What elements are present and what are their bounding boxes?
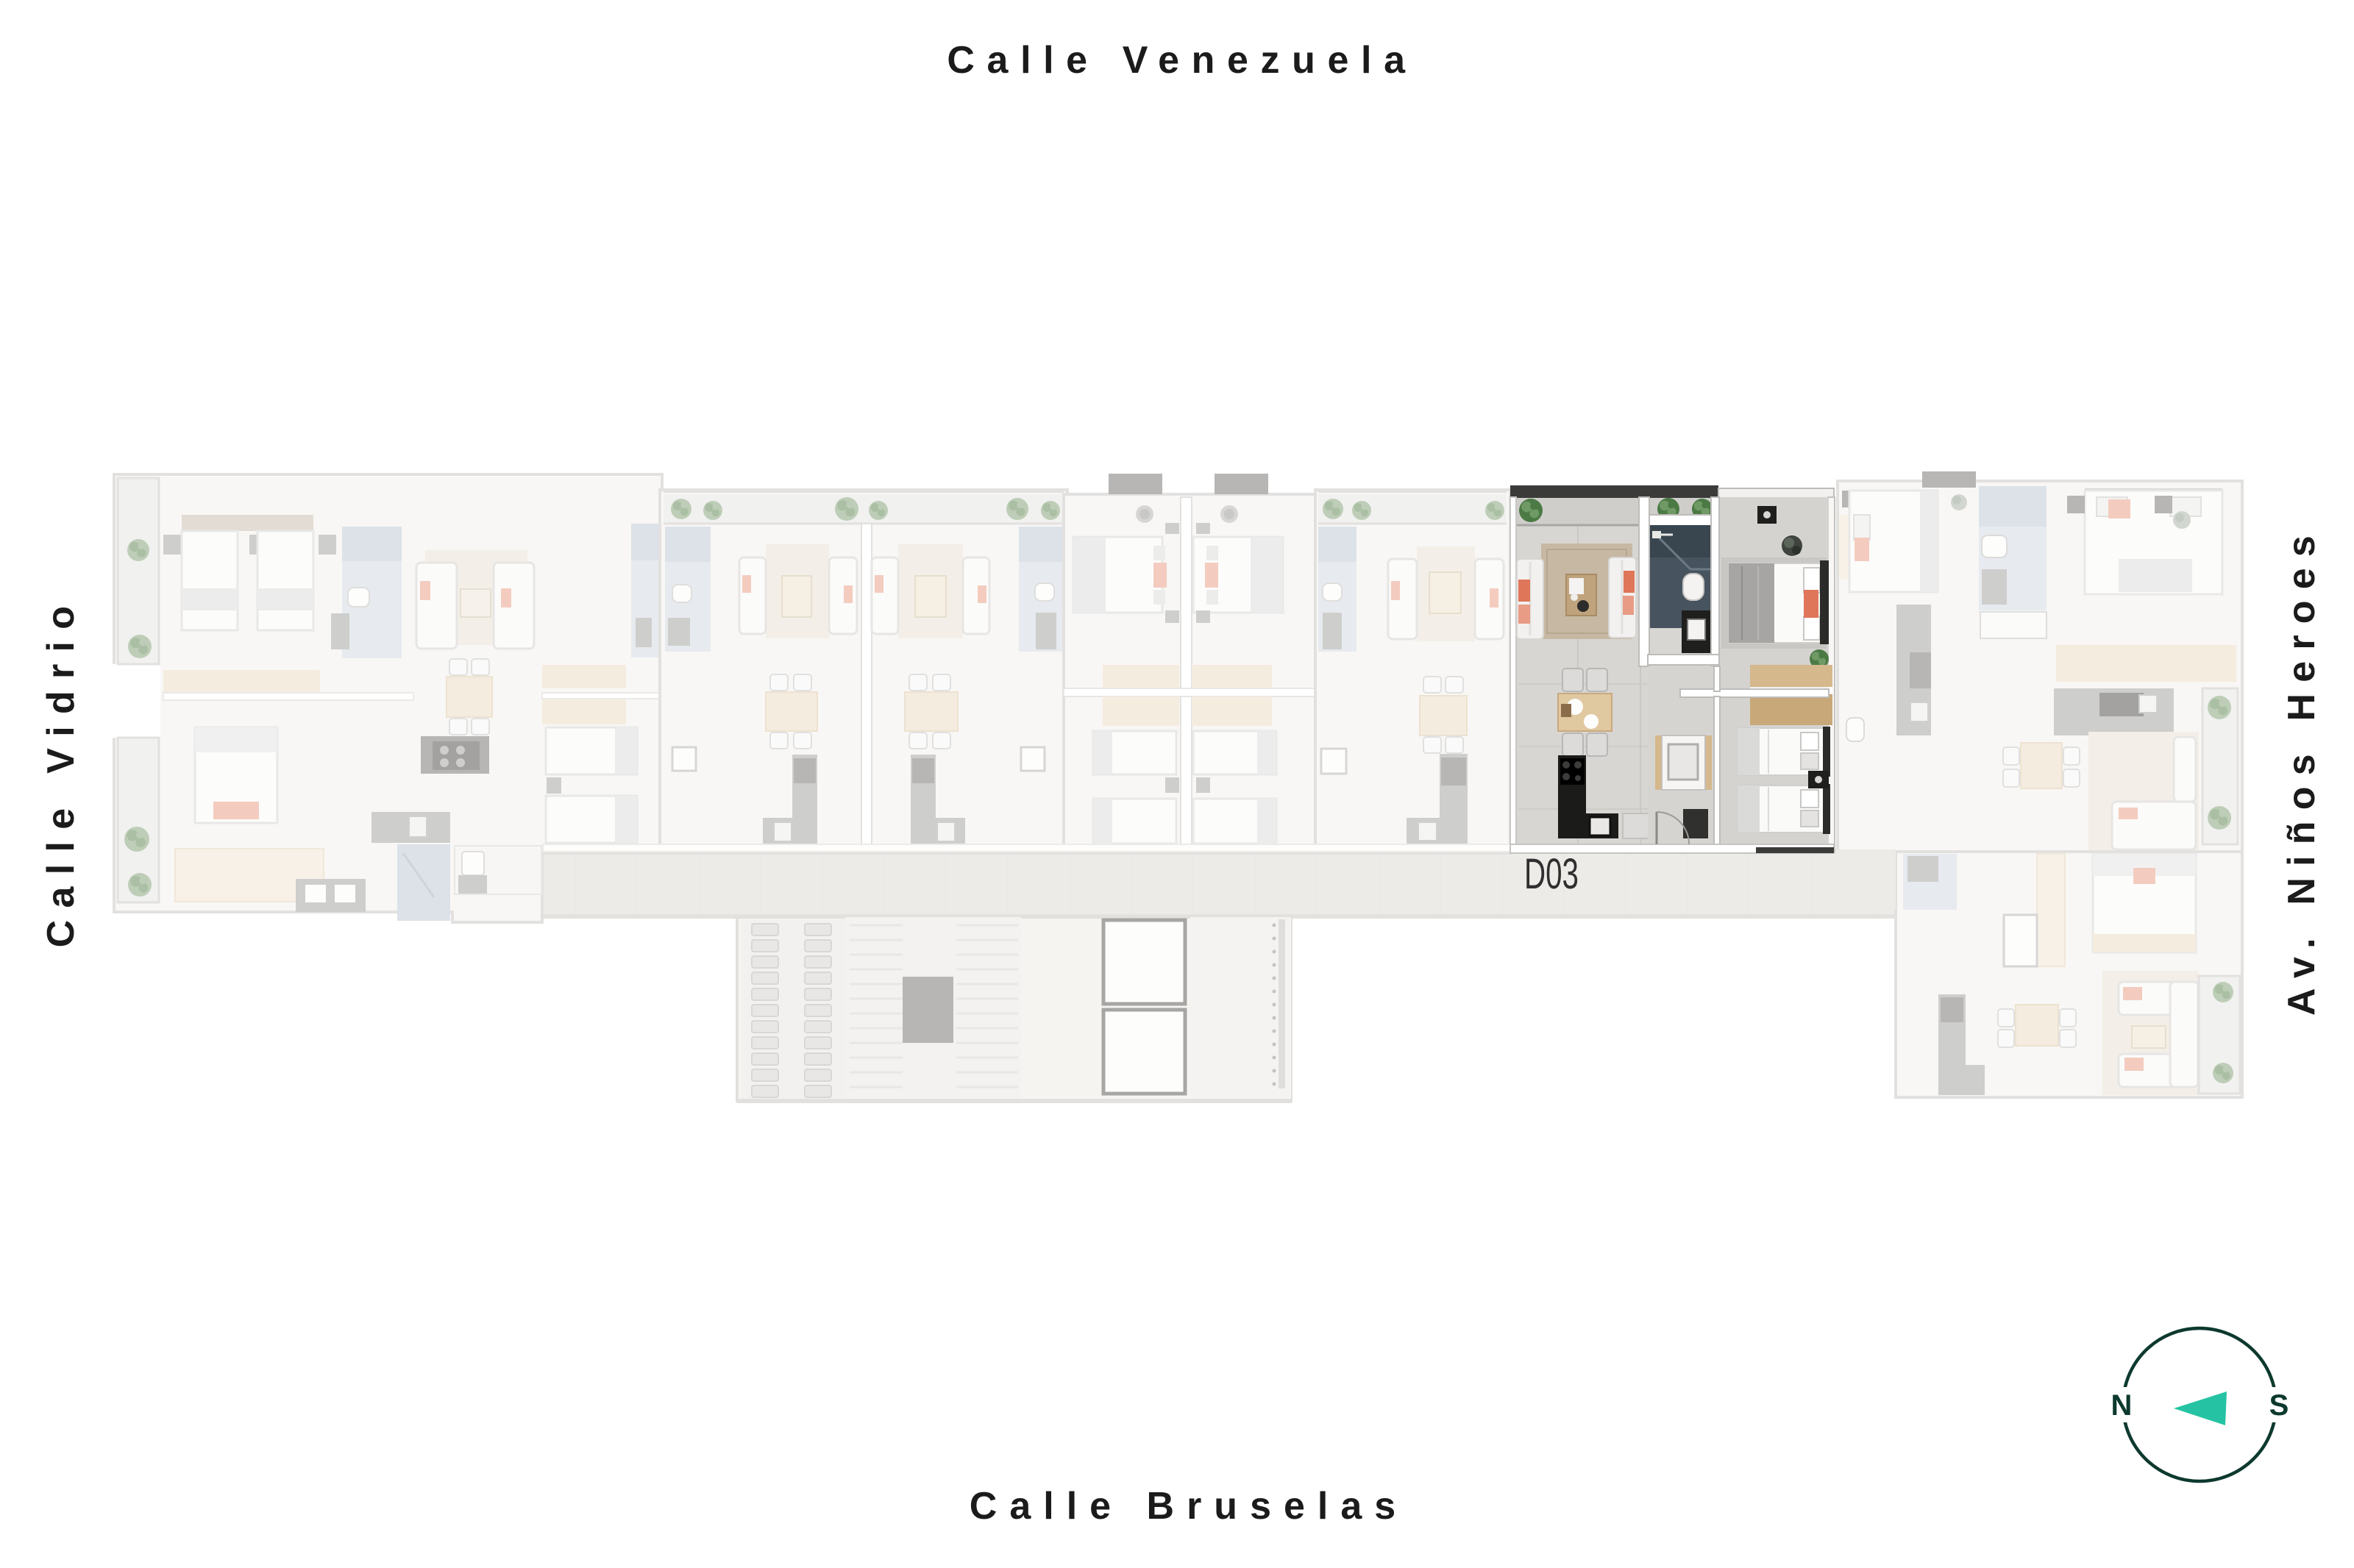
svg-text:D03: D03 bbox=[1524, 850, 1579, 898]
svg-text:N: N bbox=[2111, 1389, 2133, 1422]
svg-text:S: S bbox=[2269, 1389, 2289, 1422]
svg-text:Calle Bruselas: Calle Bruselas bbox=[970, 1485, 1408, 1528]
svg-text:Av. Niños Heroes: Av. Niños Heroes bbox=[2280, 524, 2323, 1016]
svg-text:Calle Vidrio: Calle Vidrio bbox=[40, 594, 82, 948]
svg-text:Calle Venezuela: Calle Venezuela bbox=[947, 39, 1417, 82]
